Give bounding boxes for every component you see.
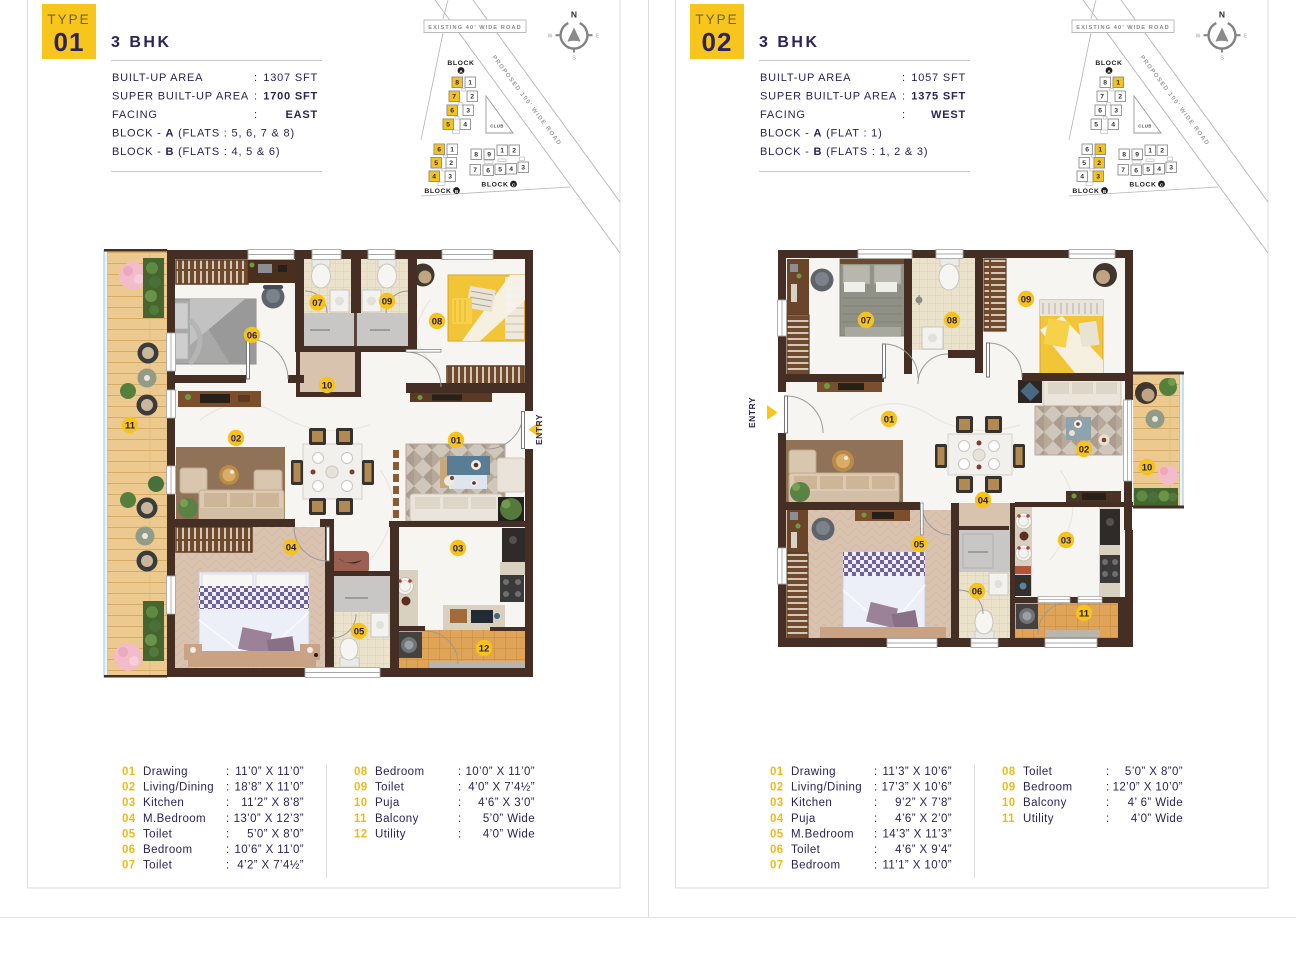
svg-text:11’3” X 10’6”: 11’3” X 10’6” xyxy=(882,766,952,778)
svg-text:4’0” Wide: 4’0” Wide xyxy=(483,828,535,840)
svg-text:5: 5 xyxy=(446,122,450,129)
svg-text::: : xyxy=(874,797,878,809)
svg-text:02: 02 xyxy=(122,782,136,794)
svg-text:SUPER BUILT-UP AREA: SUPER BUILT-UP AREA xyxy=(112,91,249,103)
svg-text:13’0” X 12’3”: 13’0” X 12’3” xyxy=(234,813,304,825)
svg-text:BLOCK - B (FLATS : 1, 2 & 3): BLOCK - B (FLATS : 1, 2 & 3) xyxy=(760,146,928,158)
svg-text:BLOCK - A (FLATS : 5, 6, 7 & 8: BLOCK - A (FLATS : 5, 6, 7 & 8) xyxy=(112,128,295,140)
svg-text:1057 SFT: 1057 SFT xyxy=(911,72,966,84)
svg-text:1700 SFT: 1700 SFT xyxy=(263,91,318,103)
svg-text:Bedroom: Bedroom xyxy=(1023,782,1072,794)
svg-text::: : xyxy=(1106,782,1110,794)
svg-text:07: 07 xyxy=(312,298,323,309)
svg-text:08: 08 xyxy=(354,766,368,778)
svg-text:BUILT-UP AREA: BUILT-UP AREA xyxy=(760,72,851,84)
svg-text:12’0” X 10’0”: 12’0” X 10’0” xyxy=(1113,782,1183,794)
svg-text:02: 02 xyxy=(770,782,784,794)
svg-text:5’0” X 8’0”: 5’0” X 8’0” xyxy=(247,828,304,840)
svg-text:06: 06 xyxy=(770,844,784,856)
svg-text:3 BHK: 3 BHK xyxy=(759,34,820,51)
svg-text::: : xyxy=(458,766,462,778)
svg-text::: : xyxy=(226,797,230,809)
svg-text:Kitchen: Kitchen xyxy=(143,797,184,809)
svg-text:3: 3 xyxy=(1096,174,1100,181)
svg-text:Drawing: Drawing xyxy=(791,766,836,778)
svg-text:01: 01 xyxy=(884,415,895,426)
svg-text:02: 02 xyxy=(1079,445,1090,456)
svg-text:01: 01 xyxy=(451,436,462,447)
svg-text::: : xyxy=(458,828,462,840)
svg-text:03: 03 xyxy=(122,797,136,809)
svg-text:Balcony: Balcony xyxy=(375,813,419,825)
svg-text:7: 7 xyxy=(452,94,456,101)
svg-text:4’6” X 3’0”: 4’6” X 3’0” xyxy=(478,797,535,809)
svg-text:Puja: Puja xyxy=(791,813,816,825)
svg-text:Toilet: Toilet xyxy=(143,828,173,840)
svg-text:M.Bedroom: M.Bedroom xyxy=(791,828,854,840)
svg-text:Bedroom: Bedroom xyxy=(375,766,424,778)
svg-text:03: 03 xyxy=(770,797,784,809)
svg-text:FACING: FACING xyxy=(112,109,158,121)
svg-text:05: 05 xyxy=(770,828,784,840)
svg-text:1307 SFT: 1307 SFT xyxy=(263,72,318,84)
svg-text::: : xyxy=(874,813,878,825)
svg-text:BUILT-UP AREA: BUILT-UP AREA xyxy=(112,72,203,84)
svg-text::: : xyxy=(902,72,906,84)
svg-text::: : xyxy=(226,844,230,856)
svg-text::: : xyxy=(874,844,878,856)
svg-text:01: 01 xyxy=(122,766,136,778)
svg-text:11’2” X 8’8”: 11’2” X 8’8” xyxy=(241,797,304,809)
svg-text:09: 09 xyxy=(354,782,368,794)
svg-text:Balcony: Balcony xyxy=(1023,797,1067,809)
svg-text:4: 4 xyxy=(432,174,436,181)
svg-text:11’1” X 10’0”: 11’1” X 10’0” xyxy=(882,860,952,872)
svg-text:Toilet: Toilet xyxy=(1023,766,1053,778)
svg-text:Living/Dining: Living/Dining xyxy=(791,782,862,794)
svg-text:BLOCK - B (FLATS : 4, 5 & 6): BLOCK - B (FLATS : 4, 5 & 6) xyxy=(112,146,280,158)
svg-text:M.Bedroom: M.Bedroom xyxy=(143,813,206,825)
svg-text:1: 1 xyxy=(1116,80,1120,87)
svg-text:11: 11 xyxy=(1079,609,1090,620)
svg-text:09: 09 xyxy=(1021,295,1032,306)
svg-text:Toilet: Toilet xyxy=(791,844,821,856)
svg-text:08: 08 xyxy=(1002,766,1016,778)
svg-text:Utility: Utility xyxy=(375,828,406,840)
svg-text:04: 04 xyxy=(978,496,989,507)
svg-text:11: 11 xyxy=(1002,813,1015,825)
svg-text:02: 02 xyxy=(231,434,242,445)
svg-text:FACING: FACING xyxy=(760,109,806,121)
svg-text:08: 08 xyxy=(432,317,443,328)
svg-text:07: 07 xyxy=(861,316,872,327)
svg-text:17’3” X 10’6”: 17’3” X 10’6” xyxy=(882,782,952,794)
svg-text::: : xyxy=(902,109,906,121)
svg-text::: : xyxy=(226,782,230,794)
svg-text:11: 11 xyxy=(354,813,367,825)
svg-text::: : xyxy=(874,860,878,872)
svg-text:Utility: Utility xyxy=(1023,813,1054,825)
svg-text::: : xyxy=(874,782,878,794)
svg-text:05: 05 xyxy=(914,540,925,551)
svg-text:5’0” Wide: 5’0” Wide xyxy=(483,813,535,825)
svg-text:08: 08 xyxy=(947,316,958,327)
svg-text:Living/Dining: Living/Dining xyxy=(143,782,214,794)
svg-text:11’0” X 11’0”: 11’0” X 11’0” xyxy=(235,766,304,778)
svg-text:10: 10 xyxy=(1142,463,1153,474)
svg-text::: : xyxy=(902,91,906,103)
svg-text:04: 04 xyxy=(286,543,297,554)
svg-text:01: 01 xyxy=(54,27,85,57)
svg-text:3 BHK: 3 BHK xyxy=(111,34,172,51)
svg-text:10: 10 xyxy=(1002,797,1016,809)
svg-text:8: 8 xyxy=(455,80,459,87)
svg-text:05: 05 xyxy=(122,828,136,840)
svg-text:2: 2 xyxy=(1097,160,1101,167)
svg-text:02: 02 xyxy=(702,27,733,57)
svg-text:03: 03 xyxy=(453,544,464,555)
svg-text:4’ 6” Wide: 4’ 6” Wide xyxy=(1128,797,1183,809)
svg-text:06: 06 xyxy=(247,331,258,342)
svg-text::: : xyxy=(254,72,258,84)
svg-text:Puja: Puja xyxy=(375,797,400,809)
svg-text:12: 12 xyxy=(479,644,490,655)
svg-text:04: 04 xyxy=(770,813,784,825)
svg-text:01: 01 xyxy=(770,766,784,778)
svg-text::: : xyxy=(254,91,258,103)
svg-text:05: 05 xyxy=(354,627,365,638)
svg-text:04: 04 xyxy=(122,813,136,825)
svg-text:4’0” Wide: 4’0” Wide xyxy=(1131,813,1183,825)
svg-text:ENTRY: ENTRY xyxy=(534,414,544,445)
svg-text:14’3” X 11’3”: 14’3” X 11’3” xyxy=(882,828,952,840)
svg-text::: : xyxy=(458,813,462,825)
svg-text:10: 10 xyxy=(322,381,333,392)
svg-text:1375 SFT: 1375 SFT xyxy=(911,91,966,103)
svg-text::: : xyxy=(226,828,230,840)
svg-text:1: 1 xyxy=(1098,147,1102,154)
svg-text::: : xyxy=(1106,813,1110,825)
svg-text:10’0” X 11’0”: 10’0” X 11’0” xyxy=(465,766,535,778)
svg-text::: : xyxy=(874,766,878,778)
svg-text:4’0” X 7’4½”: 4’0” X 7’4½” xyxy=(468,782,535,794)
svg-text:TYPE: TYPE xyxy=(47,12,90,27)
svg-text:Bedroom: Bedroom xyxy=(143,844,192,856)
svg-text:07: 07 xyxy=(770,860,784,872)
svg-text:EAST: EAST xyxy=(285,109,318,121)
svg-text:6: 6 xyxy=(437,147,441,154)
svg-text::: : xyxy=(458,782,462,794)
svg-text:Bedroom: Bedroom xyxy=(791,860,840,872)
svg-text::: : xyxy=(874,828,878,840)
svg-text:11: 11 xyxy=(125,421,136,432)
svg-text:06: 06 xyxy=(122,844,136,856)
svg-text:TYPE: TYPE xyxy=(695,12,738,27)
svg-text::: : xyxy=(1106,797,1110,809)
svg-text::: : xyxy=(226,813,230,825)
svg-text:Toilet: Toilet xyxy=(143,860,173,872)
svg-text:4’2” X 7’4½”: 4’2” X 7’4½” xyxy=(237,860,304,872)
svg-text::: : xyxy=(226,766,230,778)
svg-text:ENTRY: ENTRY xyxy=(747,397,757,428)
svg-text:03: 03 xyxy=(1061,536,1072,547)
svg-text:4’6” X 9’4”: 4’6” X 9’4” xyxy=(895,844,952,856)
svg-text:Kitchen: Kitchen xyxy=(791,797,832,809)
svg-text:10: 10 xyxy=(354,797,368,809)
svg-text::: : xyxy=(458,797,462,809)
svg-text:09: 09 xyxy=(382,297,393,308)
svg-text:09: 09 xyxy=(1002,782,1016,794)
svg-text:12: 12 xyxy=(354,828,368,840)
svg-text:07: 07 xyxy=(122,860,136,872)
svg-text:BLOCK - A (FLAT : 1): BLOCK - A (FLAT : 1) xyxy=(760,128,883,140)
svg-text:06: 06 xyxy=(972,587,983,598)
svg-text:6: 6 xyxy=(450,108,454,115)
svg-text::: : xyxy=(226,860,230,872)
svg-text:Toilet: Toilet xyxy=(375,782,405,794)
svg-text:Drawing: Drawing xyxy=(143,766,188,778)
svg-text:4’6” X 2’0”: 4’6” X 2’0” xyxy=(895,813,952,825)
svg-text:SUPER BUILT-UP AREA: SUPER BUILT-UP AREA xyxy=(760,91,897,103)
svg-text:WEST: WEST xyxy=(931,109,966,121)
svg-text::: : xyxy=(254,109,258,121)
svg-text:10’6” X 11’0”: 10’6” X 11’0” xyxy=(234,844,304,856)
svg-text:5: 5 xyxy=(434,160,438,167)
svg-text:18’8” X 11’0”: 18’8” X 11’0” xyxy=(234,782,304,794)
svg-text::: : xyxy=(1106,766,1110,778)
svg-text:9’2” X 7’8”: 9’2” X 7’8” xyxy=(895,797,952,809)
svg-text:5’0” X 8”0”: 5’0” X 8”0” xyxy=(1125,766,1183,778)
